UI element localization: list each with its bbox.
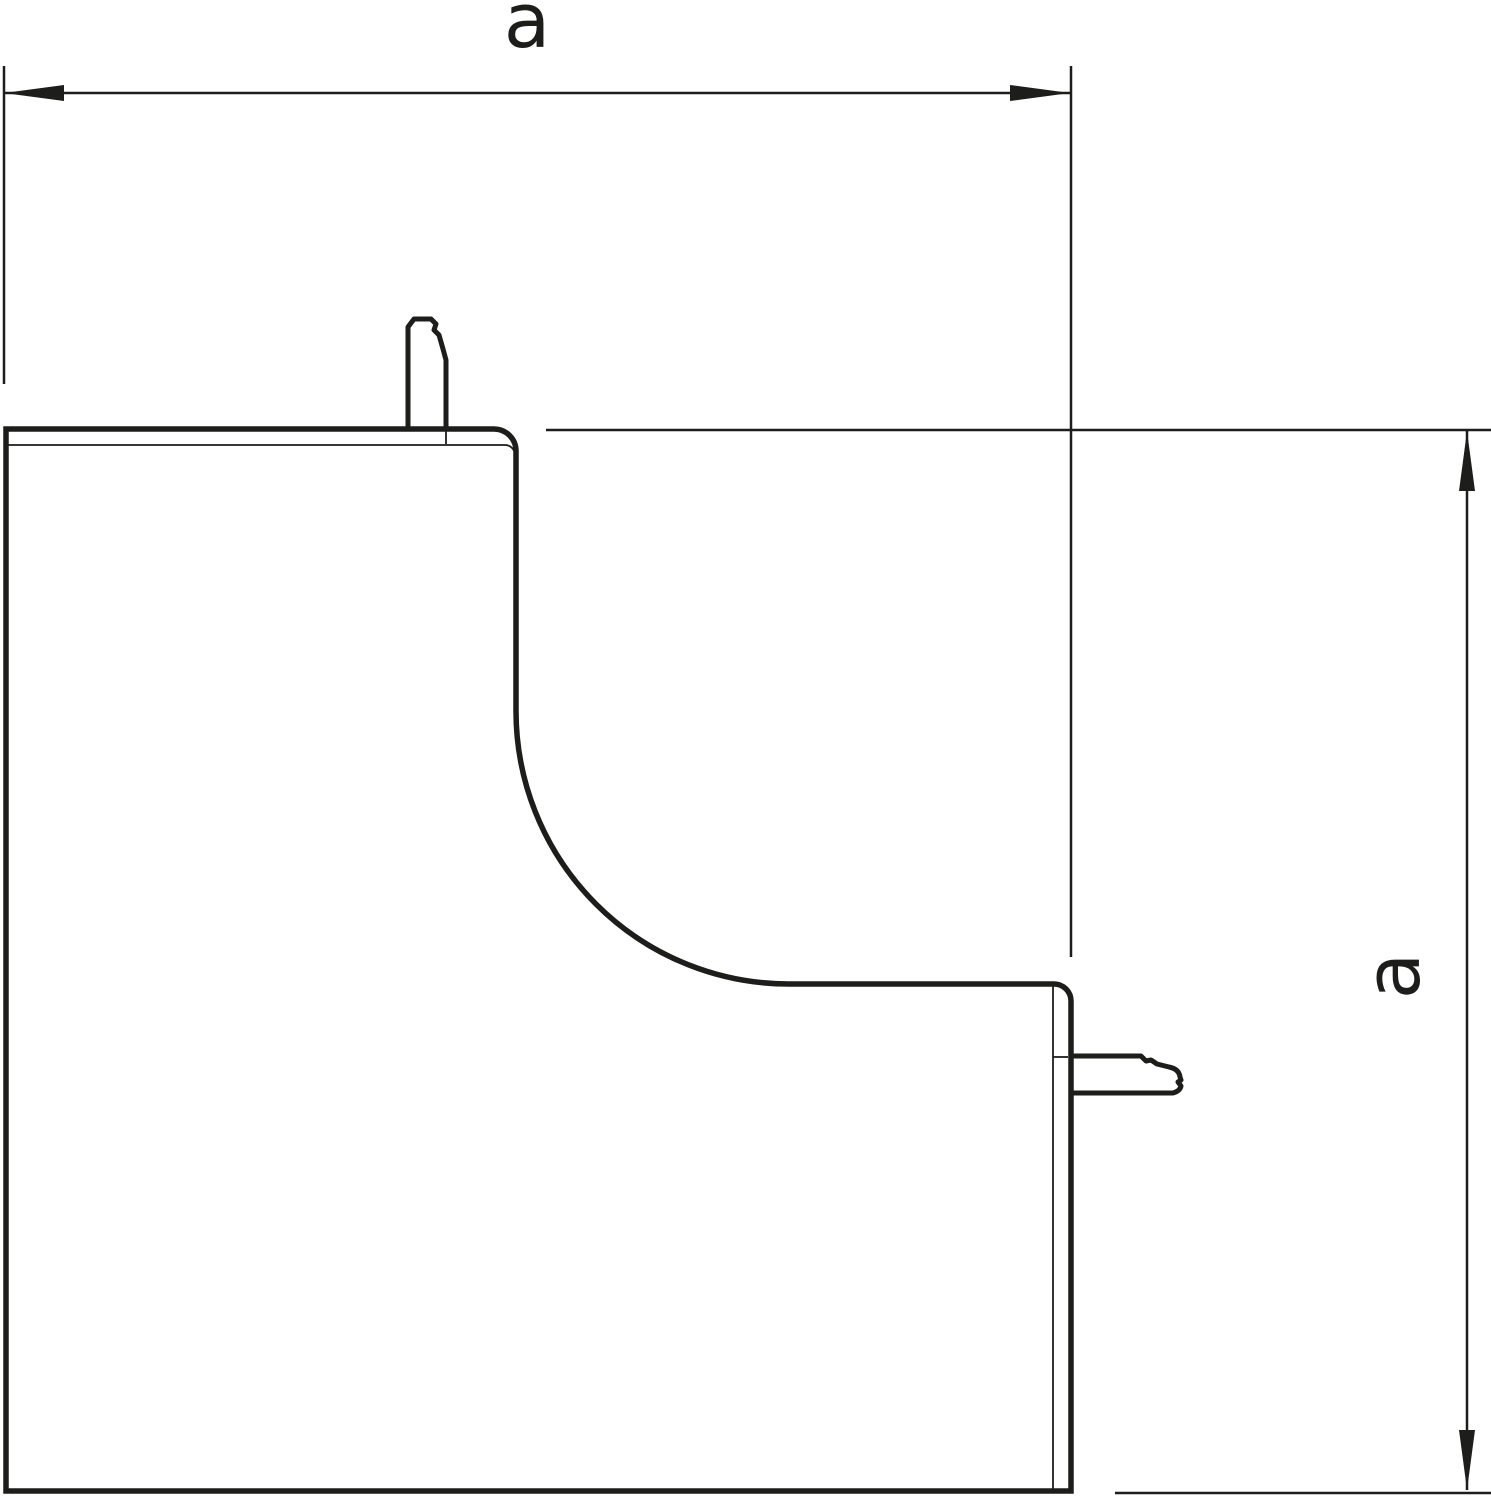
- arrowhead-right-icon: [1010, 85, 1070, 101]
- dimension-label-horizontal: a: [504, 0, 551, 65]
- arrowhead-left-icon: [4, 85, 64, 101]
- dimension-label-vertical: a: [1348, 953, 1437, 1000]
- arrowhead-down-icon: [1459, 1430, 1475, 1490]
- dimension-label-vertical-wrap: a: [1348, 953, 1437, 1000]
- arrowhead-up-icon: [1459, 431, 1475, 491]
- dimension-labels: a a: [504, 0, 1437, 999]
- part-outline: [6, 429, 1071, 1491]
- snap-tab-right: [1070, 1056, 1181, 1093]
- drawing-canvas: a a: [0, 0, 1491, 1500]
- wall-inner-edge-top: [8, 445, 515, 455]
- snap-tab-top: [408, 319, 446, 430]
- part-outline-group: [6, 319, 1181, 1491]
- technical-drawing: a a: [0, 0, 1491, 1500]
